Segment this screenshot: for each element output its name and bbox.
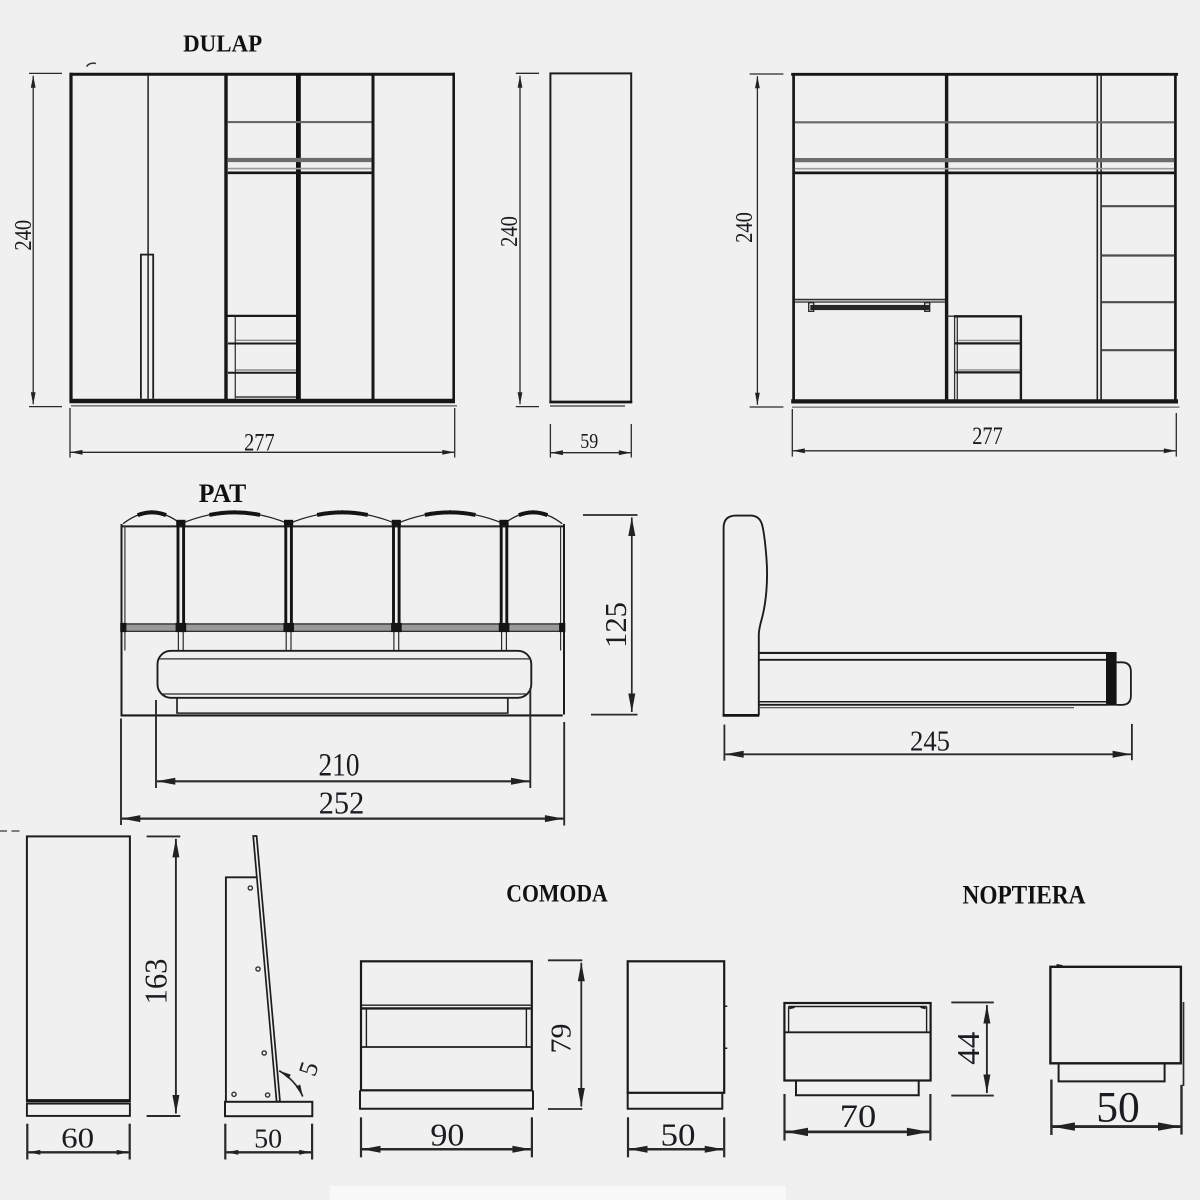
svg-text:240: 240 [10, 220, 37, 251]
svg-text:PAT: PAT [199, 479, 247, 508]
svg-text:60: 60 [61, 1123, 94, 1155]
svg-text:59: 59 [580, 429, 598, 453]
svg-text:163: 163 [138, 959, 173, 1005]
svg-text:125: 125 [598, 602, 633, 648]
svg-text:245: 245 [910, 726, 950, 758]
svg-text:90: 90 [430, 1118, 464, 1153]
svg-text:240: 240 [496, 216, 523, 247]
svg-text:79: 79 [546, 1024, 578, 1054]
svg-text:210: 210 [319, 748, 360, 784]
svg-text:NOPTIERA: NOPTIERA [963, 881, 1086, 910]
svg-text:277: 277 [244, 428, 275, 457]
svg-text:240: 240 [731, 212, 758, 243]
svg-text:44: 44 [950, 1032, 986, 1065]
svg-text:252: 252 [319, 785, 365, 821]
svg-text:70: 70 [840, 1099, 877, 1135]
svg-text:50: 50 [661, 1116, 696, 1152]
svg-text:277: 277 [972, 421, 1003, 450]
svg-text:DULAP: DULAP [183, 32, 262, 58]
svg-text:50: 50 [254, 1124, 282, 1154]
svg-text:50: 50 [1096, 1085, 1140, 1132]
svg-text:COMODA: COMODA [506, 881, 608, 908]
